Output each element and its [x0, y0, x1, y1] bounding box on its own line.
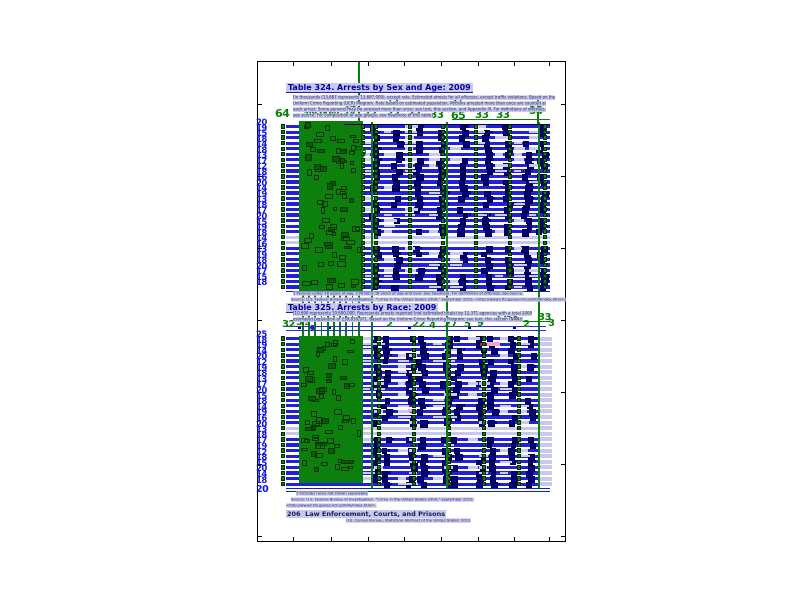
stub-word-box	[353, 139, 359, 143]
column-marker-box	[281, 141, 285, 145]
column-marker-box	[281, 437, 285, 441]
cell-box	[388, 449, 391, 452]
column-marker-box	[281, 257, 285, 261]
column-marker-box	[474, 229, 478, 233]
column-marker-box	[517, 448, 521, 452]
column-marker-box	[412, 476, 416, 480]
column-marker-box	[281, 443, 285, 447]
column-marker-box	[482, 443, 486, 447]
column-marker-box	[412, 353, 416, 357]
stub-word-box	[340, 158, 344, 163]
column-marker-box	[474, 218, 478, 222]
column-marker-box	[474, 202, 478, 206]
column-marker-box	[482, 404, 486, 408]
column-marker-box	[377, 437, 381, 441]
cell-box	[392, 410, 395, 413]
stub-word-box	[327, 278, 336, 283]
column-marker-box	[447, 376, 451, 380]
column-marker-box	[412, 437, 416, 441]
column-marker-box	[412, 448, 416, 452]
cell-text-highlight	[514, 203, 525, 206]
stub-word-box	[301, 383, 308, 387]
axis-tick	[549, 537, 550, 541]
column-marker-box	[408, 241, 412, 245]
page-number: 206	[287, 510, 301, 518]
table1-headnote-line: see source. For composition of age group…	[293, 114, 433, 118]
last-column-text	[539, 348, 552, 352]
axis-tick	[441, 62, 442, 66]
column-marker-box	[374, 268, 378, 272]
stub-word-box	[325, 430, 334, 434]
column-marker-box	[517, 471, 521, 475]
column-marker-box	[412, 409, 416, 413]
cell-box	[531, 186, 534, 189]
stub-word-box	[339, 255, 345, 260]
stub-word-box	[338, 283, 346, 288]
column-marker-box	[408, 235, 412, 239]
cell-text-highlight	[514, 269, 525, 272]
last-column-text	[539, 337, 552, 341]
cell-box	[462, 404, 465, 407]
column-marker-box	[447, 476, 451, 480]
column-marker-box	[474, 163, 478, 167]
stub-word-box	[349, 198, 354, 203]
stub-word-box	[351, 168, 356, 172]
cell-text-highlight	[429, 164, 436, 167]
column-marker-box	[482, 387, 486, 391]
row-count-annotation: 20	[256, 485, 268, 495]
stub-word-box	[348, 383, 355, 387]
column-marker-box	[447, 448, 451, 452]
column-marker-box	[447, 420, 451, 424]
last-column-text	[539, 449, 552, 453]
cell-box	[379, 147, 382, 150]
column-marker-box	[543, 191, 547, 195]
cell-text-highlight	[468, 466, 478, 469]
column-marker-box	[374, 279, 378, 283]
stub-count-annotation: 64	[275, 108, 289, 119]
cell-text-highlight	[514, 264, 527, 267]
column-marker-box	[408, 169, 412, 173]
cell-text-highlight	[384, 258, 394, 261]
column-marker-box	[377, 404, 381, 408]
column-marker-box	[374, 196, 378, 200]
column-marker-box	[517, 392, 521, 396]
stub-word-box	[305, 376, 313, 382]
cell-text-highlight	[468, 393, 477, 396]
column-marker-box	[281, 124, 285, 128]
column-marker-box	[408, 152, 412, 156]
axis-tick	[478, 537, 479, 541]
cell-box	[485, 229, 492, 236]
column-marker-box	[447, 443, 451, 447]
column-marker-box	[412, 465, 416, 469]
cell-box	[426, 460, 429, 463]
column-marker-box	[374, 191, 378, 195]
axis-tick	[561, 176, 565, 177]
column-marker-box	[281, 268, 285, 272]
axis-tick	[561, 392, 565, 393]
cell-text-highlight	[514, 153, 522, 156]
cell-box	[491, 158, 494, 161]
column-marker-box	[441, 224, 445, 228]
column-marker-box	[543, 229, 547, 233]
column-marker-box	[281, 409, 285, 413]
cell-box	[458, 196, 465, 203]
table1-footnote-line: 1 Persons under 18 years of age. 2 Perso…	[293, 292, 523, 296]
table1-top-rule	[344, 124, 550, 125]
axis-tick	[561, 248, 565, 249]
column-marker-box	[281, 460, 285, 464]
cell-box	[398, 175, 401, 178]
axis-tick	[478, 62, 479, 66]
cell-text-highlight	[529, 275, 538, 278]
stub-word-box	[327, 183, 333, 189]
column-marker-box	[447, 387, 451, 391]
column-marker-box	[441, 141, 445, 145]
column-marker-box	[441, 207, 445, 211]
cell-box	[393, 274, 400, 281]
cell-text-highlight	[398, 354, 406, 357]
column-marker-box	[377, 364, 381, 368]
stub-word-box	[316, 351, 320, 357]
cell-text-highlight	[529, 269, 541, 272]
last-column-text	[539, 460, 552, 464]
cell-text-highlight	[495, 170, 507, 173]
column-marker-box	[374, 218, 378, 222]
cell-text-highlight	[384, 230, 392, 233]
column-marker-box	[482, 420, 486, 424]
column-marker-box	[517, 432, 521, 436]
column-marker-box	[508, 229, 512, 233]
cell-box	[454, 336, 460, 342]
cell-box	[392, 438, 395, 441]
cell-box	[391, 371, 394, 374]
axis-tick	[561, 536, 565, 537]
column-marker-box	[447, 465, 451, 469]
column-marker-box	[377, 448, 381, 452]
cell-text-highlight	[500, 410, 508, 413]
stub-word-box	[304, 238, 313, 242]
stub-word-box	[326, 373, 332, 378]
axis-tick	[561, 320, 565, 321]
cell-box	[531, 158, 534, 161]
column-marker-box	[482, 432, 486, 436]
column-marker-box	[408, 207, 412, 211]
column-marker-box	[447, 353, 451, 357]
column-marker-box	[543, 135, 547, 139]
stub-word-box	[336, 189, 342, 195]
cell-box	[417, 409, 424, 416]
column-marker-box	[281, 135, 285, 139]
stub-word-box	[350, 339, 354, 344]
column-marker-box	[281, 426, 285, 430]
column-marker-box	[408, 202, 412, 206]
page: Table 324. Arrests by Sex and Age: 2009 …	[258, 62, 565, 541]
column-marker-box	[408, 124, 412, 128]
cell-text-highlight	[500, 337, 508, 340]
stub-word-box	[314, 164, 321, 170]
column-marker-box	[447, 342, 451, 346]
column-marker-box	[508, 169, 512, 173]
column-marker-box	[474, 135, 478, 139]
column-marker-box	[517, 420, 521, 424]
column-marker-box	[441, 241, 445, 245]
cell-box	[422, 370, 428, 376]
column-marker-box	[281, 471, 285, 475]
column-marker-box	[474, 257, 478, 261]
column-marker-box	[441, 124, 445, 128]
last-column-text	[539, 387, 552, 391]
column-marker-box	[508, 241, 512, 245]
column-marker-box	[281, 404, 285, 408]
stub-word-box	[351, 418, 356, 424]
column-marker-box	[508, 158, 512, 162]
cell-box	[399, 252, 402, 255]
column-marker-box	[281, 376, 285, 380]
cell-box	[514, 382, 517, 385]
stub-word-box	[310, 147, 316, 152]
cell-box	[514, 449, 517, 452]
column-marker-box	[474, 169, 478, 173]
stub-word-box	[307, 371, 314, 375]
column-guide-line	[538, 122, 540, 489]
stub-word-box	[304, 439, 310, 444]
column-marker-box	[508, 218, 512, 222]
stub-word-box	[326, 379, 331, 383]
column-marker-box	[374, 229, 378, 233]
column-marker-box	[374, 274, 378, 278]
cell-box	[427, 466, 430, 469]
column-marker-box	[508, 196, 512, 200]
column-marker-box	[508, 213, 512, 217]
column-marker-box	[474, 141, 478, 145]
cell-box	[489, 213, 492, 216]
column-marker-box	[517, 465, 521, 469]
column-marker-box	[482, 336, 486, 340]
column-marker-box	[377, 353, 381, 357]
last-column-text	[539, 454, 552, 458]
cell-box	[463, 141, 470, 148]
column-marker-box	[281, 392, 285, 396]
column-marker-box	[508, 130, 512, 134]
column-marker-box	[441, 158, 445, 162]
column-marker-box	[361, 130, 365, 134]
axis-tick	[258, 464, 262, 465]
cell-text-highlight	[450, 280, 458, 283]
column-marker-box	[281, 147, 285, 151]
column-marker-box	[482, 364, 486, 368]
cell-text-highlight	[514, 247, 522, 250]
stub-word-box	[322, 418, 328, 424]
stub-word-box	[319, 387, 327, 392]
cell-box	[469, 213, 472, 216]
cell-box	[390, 483, 393, 486]
column-marker-box	[412, 415, 416, 419]
cell-text-highlight	[468, 337, 480, 340]
column-marker-box	[447, 404, 451, 408]
column-marker-box	[482, 482, 486, 486]
table1-headnote-line: Uniform Crime Reporting (UCR) Program. R…	[293, 102, 546, 106]
last-column-text	[539, 376, 552, 380]
column-marker-box	[374, 185, 378, 189]
stub-word-box	[337, 139, 345, 143]
stub-word-box	[308, 396, 316, 401]
stub-word-box	[328, 448, 335, 454]
cell-box	[421, 482, 427, 488]
column-marker-box	[474, 180, 478, 184]
cell-box	[419, 169, 422, 172]
cell-text-highlight	[384, 131, 391, 134]
stub-word-box	[301, 243, 309, 249]
column-marker-box	[377, 376, 381, 380]
cell-text-highlight	[384, 225, 395, 228]
column-marker-box	[474, 158, 478, 162]
column-marker-box	[508, 147, 512, 151]
stub-word-box	[336, 395, 341, 401]
cell-text-highlight	[429, 230, 438, 233]
column-marker-box	[412, 460, 416, 464]
cell-box	[464, 225, 467, 228]
last-column-text	[539, 353, 552, 357]
column-marker-box	[447, 460, 451, 464]
column-marker-box	[447, 482, 451, 486]
column-marker-box	[361, 202, 365, 206]
column-marker-box	[412, 342, 416, 346]
column-marker-box	[281, 476, 285, 480]
column-marker-box	[543, 147, 547, 151]
column-marker-box	[482, 448, 486, 452]
column-marker-box	[474, 191, 478, 195]
column-count-annotation: 3	[548, 319, 554, 329]
stub-word-box	[341, 460, 349, 464]
stub-word-box	[325, 245, 333, 249]
cell-text-highlight	[514, 142, 522, 145]
column-marker-box	[281, 241, 285, 245]
stub-word-box	[321, 207, 325, 213]
column-marker-box	[543, 268, 547, 272]
column-marker-box	[441, 246, 445, 250]
column-marker-box	[377, 443, 381, 447]
axis-tick	[331, 62, 332, 66]
column-marker-box	[281, 348, 285, 352]
column-marker-box	[377, 432, 381, 436]
footer-footnote: 1 Includes races not shown separately.	[296, 492, 368, 496]
column-marker-box	[374, 147, 378, 151]
column-marker-box	[361, 246, 365, 250]
column-marker-box	[412, 426, 416, 430]
figure-canvas: { "figure": { "type": "document-layout-v…	[0, 0, 800, 600]
column-marker-box	[517, 387, 521, 391]
column-marker-box	[412, 392, 416, 396]
column-marker-box	[482, 437, 486, 441]
column-marker-box	[482, 376, 486, 380]
column-marker-box	[374, 174, 378, 178]
column-marker-box	[408, 263, 412, 267]
cell-box	[491, 258, 494, 261]
column-marker-box	[408, 213, 412, 217]
stub-word-box	[315, 247, 323, 253]
last-column-text	[539, 443, 552, 447]
column-marker-box	[543, 124, 547, 128]
column-marker-box	[441, 279, 445, 283]
column-guide-line	[446, 122, 448, 489]
column-marker-box	[374, 202, 378, 206]
stub-word-box	[314, 175, 319, 180]
stub-word-box	[333, 356, 338, 361]
cell-box	[461, 455, 464, 458]
cell-box	[528, 230, 531, 233]
last-column-text	[539, 482, 552, 486]
cell-text-highlight	[529, 214, 536, 217]
last-column-text	[539, 432, 552, 436]
footer-source-line: Source: U.S. Federal Bureau of Investiga…	[291, 498, 474, 502]
column-marker-box	[281, 169, 285, 173]
cell-box	[465, 280, 468, 283]
cell-box	[497, 483, 500, 486]
column-count-annotation: 2	[523, 320, 529, 330]
column-marker-box	[517, 376, 521, 380]
column-marker-box	[482, 381, 486, 385]
cell-text-highlight	[429, 158, 440, 161]
table2-headnote-line: [10,690 represents 10,690,000. Represent…	[293, 312, 532, 316]
stub-word-box	[325, 194, 332, 198]
highlight-pink	[487, 342, 500, 346]
stub-word-box	[314, 467, 318, 472]
stub-word-box	[305, 420, 310, 425]
column-marker-box	[482, 476, 486, 480]
axis-tick	[368, 537, 369, 541]
cell-box	[379, 280, 382, 283]
cell-text-highlight	[363, 388, 370, 391]
column-marker-box	[281, 130, 285, 134]
last-column-text	[539, 421, 552, 425]
cell-text-highlight	[398, 360, 409, 363]
column-marker-box	[543, 224, 547, 228]
column-marker-box	[412, 359, 416, 363]
column-marker-box	[374, 169, 378, 173]
column-marker-box	[408, 130, 412, 134]
last-column-text	[539, 381, 552, 385]
column-marker-box	[281, 180, 285, 184]
column-marker-box	[508, 235, 512, 239]
column-marker-box	[281, 342, 285, 346]
cell-box	[391, 202, 397, 208]
stub-word-box	[355, 227, 361, 231]
column-marker-box	[281, 207, 285, 211]
cell-box	[426, 404, 429, 407]
column-marker-box	[374, 180, 378, 184]
column-marker-box	[482, 426, 486, 430]
last-column-text	[539, 404, 552, 408]
circled-count-annotation: 9	[355, 147, 366, 158]
cell-text-highlight	[514, 286, 522, 289]
axis-tick	[258, 248, 262, 249]
cell-box	[488, 219, 491, 222]
column-marker-box	[508, 207, 512, 211]
column-marker-box	[517, 476, 521, 480]
stub-word-box	[326, 284, 333, 290]
column-marker-box	[377, 415, 381, 419]
axis-tick	[258, 320, 262, 321]
stub-word-box	[330, 224, 338, 230]
column-marker-box	[508, 246, 512, 250]
column-marker-box	[377, 381, 381, 385]
column-marker-box	[517, 482, 521, 486]
stub-word-box	[302, 265, 308, 271]
column-marker-box	[408, 218, 412, 222]
cell-box	[422, 147, 425, 150]
